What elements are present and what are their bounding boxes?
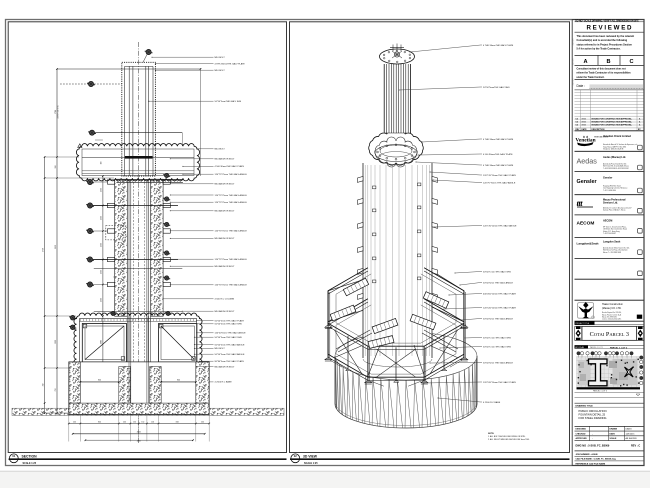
svg-text:Services Ltd.: Services Ltd.: [603, 202, 618, 205]
svg-text:09/01: 09/01: [582, 121, 587, 123]
svg-text:4 THK 90mmTHK GALV PLATE: 4 THK 90mmTHK GALV PLATE: [483, 138, 514, 141]
svg-text:2 3 4 5 6: 2 3 4 5 6: [572, 39, 574, 46]
svg-text:120*75*75mm THK GALV ANGLE: 120*75*75mm THK GALV ANGLE: [215, 258, 248, 261]
svg-text:3650: 3650: [55, 245, 57, 249]
svg-text:50*50*5mm THK GALV ANGLE: 50*50*5mm THK GALV ANGLE: [215, 343, 245, 346]
svg-text:2 3 4 5 6: 2 3 4 5 6: [572, 79, 574, 86]
svg-text:APPROVED: APPROVED: [576, 437, 588, 440]
svg-text:M10 ANCHOR BOLT: M10 ANCHOR BOLT: [215, 183, 236, 186]
svg-text:under the Trade Contract.: under the Trade Contract.: [577, 76, 605, 79]
svg-text:This document has been reviewe: This document has been reviewed by the r…: [577, 35, 635, 38]
svg-text:4 500 90mmTHK GALV PLATE: 4 500 90mmTHK GALV PLATE: [215, 165, 245, 168]
svg-text:T +853 2833 3368 F +853 2833: T +853 2833 3368 F +853 2833 3362: [603, 168, 629, 170]
svg-text:4 THK 90mmTHK GALV PLATE: 4 THK 90mmTHK GALV PLATE: [483, 164, 514, 167]
svg-text:50*50*5mm THK GALV ANGLE: 50*50*5mm THK GALV ANGLE: [483, 361, 513, 364]
svg-text:3650: 3650: [101, 216, 103, 220]
svg-text:3650: 3650: [101, 188, 103, 192]
svg-text:M10 ANCHOR BOLT: M10 ANCHOR BOLT: [215, 365, 236, 368]
svg-text:Hsako Construction: Hsako Construction: [602, 303, 624, 306]
svg-text:M10 ANCHOR BOLT: M10 ANCHOR BOLT: [215, 210, 236, 213]
svg-text:150: 150: [133, 421, 136, 423]
svg-text:M10 BOLT: M10 BOLT: [215, 149, 226, 151]
svg-text:LIANG: LIANG: [626, 428, 632, 431]
svg-text:120*50*5mm THK GALV ANGLE: 120*50*5mm THK GALV ANGLE: [215, 332, 247, 335]
svg-text:120*120*10mm THK GALV PLATE: 120*120*10mm THK GALV PLATE: [483, 306, 517, 309]
svg-text:Macau T + 853 2883 3033: Macau T + 853 2883 3033: [603, 252, 621, 254]
svg-text:▲▲: ▲▲: [582, 134, 588, 138]
svg-text:50*50*5mmTHK GALV SHS: 50*50*5mmTHK GALV SHS: [215, 100, 242, 103]
svg-text:50*50*5mm THK GALV ANGLE: 50*50*5mm THK GALV ANGLE: [483, 317, 513, 320]
svg-text:50*50*5mmTHK GALV SHS: 50*50*5mmTHK GALV SHS: [483, 86, 510, 89]
svg-text:120*75*75mm THK GALV ANGLE: 120*75*75mm THK GALV ANGLE: [215, 284, 248, 287]
svg-text:Macau Tel: 2878 6281: Macau Tel: 2878 6281: [602, 316, 617, 318]
svg-text:09/01: 09/01: [582, 119, 587, 121]
svg-text:Licenca: 2014-01-0512-0-EC: Licenca: 2014-01-0512-0-EC: [602, 319, 622, 321]
svg-text:150: 150: [141, 421, 144, 423]
svg-text:844: 844: [98, 380, 101, 382]
svg-text:AS SHOWN: AS SHOWN: [626, 437, 637, 440]
svg-text:50*50*5 mm THK GALV SHS: 50*50*5 mm THK GALV SHS: [483, 345, 511, 348]
svg-text:M10 ANCHOR BOLT: M10 ANCHOR BOLT: [215, 158, 236, 161]
svg-text:120*75*75mm THK GALV ANGLE: 120*75*75mm THK GALV ANGLE: [215, 230, 248, 233]
svg-text:50*50*5mm THK GALV ANGLE: 50*50*5mm THK GALV ANGLE: [215, 353, 245, 356]
svg-text:398: 398: [55, 166, 57, 169]
svg-text:4 500 90mmTHK GALV PLATE: 4 500 90mmTHK GALV PLATE: [483, 153, 513, 156]
svg-text:844: 844: [98, 421, 101, 423]
svg-text:3650: 3650: [101, 270, 103, 274]
svg-text:120*170*10mm THK GALV PLATE: 120*170*10mm THK GALV PLATE: [483, 174, 517, 177]
svg-text:M10 BOLT: M10 BOLT: [215, 57, 226, 59]
svg-text:C2: C2: [576, 124, 578, 126]
svg-text:2 3 4 5 6: 2 3 4 5 6: [572, 59, 574, 66]
svg-text:FOR STEEL DRAWING: FOR STEEL DRAWING: [579, 416, 607, 420]
svg-text:A: A: [583, 59, 587, 65]
svg-text:1000: 1000: [55, 340, 57, 344]
svg-text:PARCEL 1, LOT 2: PARCEL 1, LOT 2: [610, 346, 628, 349]
svg-text:Gensler: Gensler: [577, 179, 598, 185]
svg-text:4 500 R.C COLUMN: 4 500 R.C COLUMN: [215, 299, 235, 301]
svg-text:1000: 1000: [101, 340, 103, 344]
svg-text:50*50*5mm THK GALV ANGLE: 50*50*5mm THK GALV ANGLE: [483, 281, 513, 284]
svg-text:TYP: TYP: [113, 277, 116, 279]
svg-text:Aedas: Aedas: [577, 157, 598, 166]
svg-text:ISSUED FOR CONSTRUCTION APPROV: ISSUED FOR CONSTRUCTION APPROVAL: [592, 118, 633, 121]
svg-text:200: 200: [73, 421, 76, 423]
svg-text:200: 200: [123, 421, 126, 423]
svg-text:5796: 5796: [42, 248, 44, 252]
svg-text:M10 ANCHOR BOLT: M10 ANCHOR BOLT: [215, 265, 236, 268]
svg-text:90*90*5mm THK GALV PLATE: 90*90*5mm THK GALV PLATE: [215, 360, 245, 363]
svg-text:SCALE: SCALE: [610, 437, 617, 440]
svg-text:844: 844: [176, 421, 179, 423]
svg-text:200: 200: [201, 421, 204, 423]
svg-text:REV : C: REV : C: [631, 445, 640, 448]
svg-text:120*120*10mm THK GALV PLATE: 120*120*10mm THK GALV PLATE: [483, 381, 517, 384]
svg-text:(VERIFY ON SITE): (VERIFY ON SITE): [58, 105, 60, 118]
svg-text:Consultant review of this: Consultant review of this document does …: [577, 68, 626, 71]
svg-text:01: 01: [12, 454, 15, 458]
svg-text:3D VIEW: 3D VIEW: [303, 454, 318, 458]
svg-text:4 2500 R.C BASE: 4 2500 R.C BASE: [215, 381, 233, 384]
svg-text:Langdon&Seah: Langdon&Seah: [577, 242, 599, 246]
svg-text:2. ALL FILLET WELDED SHOULD BE: 2. ALL FILLET WELDED SHOULD BE 3mm THK.: [488, 438, 530, 441]
svg-text:JOB NUMBER : 4-SUB: JOB NUMBER : 4-SUB: [576, 453, 599, 456]
svg-text:4 2500 R.C BASE: 4 2500 R.C BASE: [483, 401, 501, 404]
svg-text:1786: 1786: [55, 110, 57, 114]
svg-text:AECOM: AECOM: [603, 220, 612, 223]
svg-text:Rua de Pequim No. 202-246,: Rua de Pequim No. 202-246,: [602, 312, 622, 314]
svg-text:M10 ANCHOR BOLT: M10 ANCHOR BOLT: [215, 310, 236, 313]
svg-text:PARCEL 1 LOT 3: PARCEL 1 LOT 3: [593, 390, 607, 393]
svg-text:50*50*5mm THK GALV SHS: 50*50*5mm THK GALV SHS: [215, 323, 243, 326]
svg-text:50*50*5mm THK GALV SHS: 50*50*5mm THK GALV SHS: [215, 336, 243, 339]
svg-text:750: 750: [42, 384, 44, 387]
svg-text:400*200*10mm THK GALV PLATE: 400*200*10mm THK GALV PLATE: [483, 292, 517, 295]
svg-text:150: 150: [101, 162, 103, 165]
svg-text:50*50*5 mm THK GALV SHS: 50*50*5 mm THK GALV SHS: [483, 336, 511, 339]
svg-text:120*75*75mm THK GALV ANGLE: 120*75*75mm THK GALV ANGLE: [215, 173, 248, 176]
svg-text:SCALE 1:25: SCALE 1:25: [23, 462, 37, 465]
svg-text:R E V I E W E D: R E V I E W E D: [586, 25, 632, 32]
svg-text:T +852 2600 8000: T +852 2600 8000: [603, 233, 616, 235]
svg-text:200: 200: [151, 421, 154, 423]
svg-text:SCALE 1:25: SCALE 1:25: [304, 462, 318, 465]
svg-text:750: 750: [55, 389, 57, 392]
svg-text:NOTE:: NOTE:: [488, 433, 495, 435]
svg-text:C2: C2: [576, 121, 578, 123]
svg-text:2584: 2584: [137, 432, 141, 434]
svg-text:Aedas (Macau) Ltd.: Aedas (Macau) Ltd.: [603, 156, 626, 159]
svg-text:2884: 2884: [137, 441, 141, 443]
svg-text:50*50*5 mm THK GALV SHS: 50*50*5 mm THK GALV SHS: [483, 270, 511, 273]
svg-text:DWG NO : 5-SUB_FC_B5009: DWG NO : 5-SUB_FC_B5009: [576, 445, 610, 448]
svg-text:ISSUED FOR CONSTRUCTION APPROV: ISSUED FOR CONSTRUCTION APPROVAL: [592, 120, 633, 123]
svg-text:(Macau) CO. LTD.: (Macau) CO. LTD.: [602, 307, 622, 310]
svg-text:T +81 3 6406 6800: T +81 3 6406 6800: [603, 190, 616, 192]
svg-text:C2: C2: [576, 119, 578, 121]
svg-text:M10 BOLT: M10 BOLT: [215, 70, 226, 72]
svg-text:15/01: 15/01: [572, 128, 574, 132]
svg-text:14/1/2015: 14/1/2015: [626, 433, 636, 435]
svg-text:Venetian Orient Limited: Venetian Orient Limited: [603, 135, 631, 138]
svg-text:DESIGNED: DESIGNED: [576, 429, 587, 431]
svg-text:M10 ANCHOR BOLT: M10 ANCHOR BOLT: [215, 237, 236, 240]
svg-text:CHECKED: CHECKED: [576, 433, 586, 435]
svg-text:5.4 for action by the Tra: 5.4 for action by the Trade Contractor.: [577, 48, 621, 51]
svg-text:50*50*5mm THK GALV PLATE: 50*50*5mm THK GALV PLATE: [215, 319, 245, 322]
svg-text:M10 BOLT: M10 BOLT: [215, 348, 226, 350]
svg-text:REFERENCE CAD FILE NAME: REFERENCE CAD FILE NAME: [576, 462, 606, 465]
svg-text:COTAI PARCEL 3: COTAI PARCEL 3: [590, 331, 629, 338]
svg-text:Date :: Date :: [577, 84, 586, 88]
svg-text:3650: 3650: [101, 243, 103, 247]
svg-text:120*75*75mm THK GALV ANGLE: 120*75*75mm THK GALV ANGLE: [483, 181, 516, 184]
svg-text:4 THK 90mmTHK GALV PLATE: 4 THK 90mmTHK GALV PLATE: [215, 62, 246, 65]
svg-text:09/01: 09/01: [582, 124, 587, 126]
svg-text:TYP: TYP: [158, 277, 161, 279]
svg-text:B: B: [606, 59, 610, 65]
svg-text:120*170*10mm THK GALV ANGLE: 120*170*10mm THK GALV ANGLE: [483, 224, 517, 227]
svg-text:status referred to in Proj: status referred to in Project Procedures…: [577, 43, 633, 46]
svg-text:AECOM: AECOM: [577, 221, 595, 227]
svg-text:120*75*75mm THK GALV ANGLE: 120*75*75mm THK GALV ANGLE: [215, 201, 248, 204]
svg-text:DRAWING TITLE: DRAWING TITLE: [576, 404, 594, 407]
svg-text:CAD FILE NAME : 5-SUB_FC_B5009: CAD FILE NAME : 5-SUB_FC_B5009.dwg: [576, 458, 617, 461]
svg-text:Telephone: (853) 81 18-28 88: Telephone: (853) 81 18-28 88: [603, 149, 623, 151]
svg-text:02: 02: [294, 454, 297, 458]
svg-text:DATE: DATE: [610, 432, 616, 435]
svg-text:DRAWN: DRAWN: [610, 428, 618, 431]
svg-text:relieve the Trade Contracto: relieve the Trade Contractor of its resp…: [577, 72, 632, 75]
svg-text:120*75*75mm THK GALV ANGLE: 120*75*75mm THK GALV ANGLE: [215, 194, 248, 197]
svg-text:3650: 3650: [101, 298, 103, 302]
svg-text:Gensler: Gensler: [603, 177, 612, 180]
svg-text:844: 844: [177, 380, 180, 382]
svg-text:4 THK 90mmTHK GALV PLATE: 4 THK 90mmTHK GALV PLATE: [483, 44, 514, 47]
svg-text:C: C: [629, 59, 633, 65]
svg-text:ISSUED FOR CONSTRUCTION APPROV: ISSUED FOR CONSTRUCTION APPROVAL: [592, 123, 633, 126]
svg-text:1. ALL BOLT SHOULD BE FIXING O: 1. ALL BOLT SHOULD BE FIXING ON SITE.: [488, 435, 526, 438]
svg-text:Langdon Seah: Langdon Seah: [603, 241, 621, 244]
svg-text:Consultant(s) and is accord: Consultant(s) and is accorded the follow…: [577, 39, 628, 42]
svg-text:SECTION: SECTION: [22, 454, 38, 458]
